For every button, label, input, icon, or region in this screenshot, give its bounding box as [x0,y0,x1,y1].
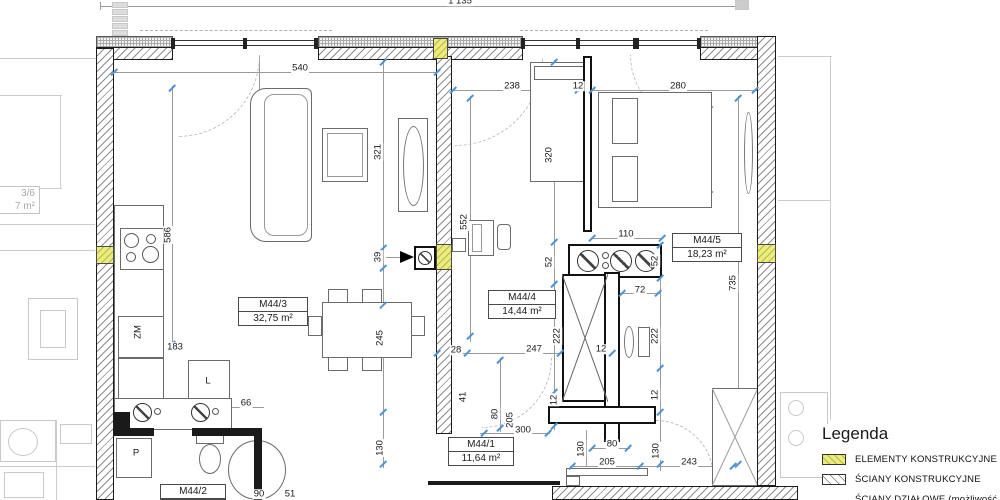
legend-item: ŚCIANY KONSTRUKCYJNE [822,474,1000,485]
room-label-m44-2: M44/2 [160,484,226,500]
dimension-label: ZM [133,324,143,340]
sink-circle [191,403,210,422]
wall-bottom [552,486,798,500]
dimension-label: 1 135 [447,0,473,6]
sink-circle [133,403,152,422]
chair [411,316,425,336]
legend: Legenda ELEMENTY KONSTRUKCYJNE ŚCIANY KO… [822,424,1000,500]
dimension-label: 66 [240,398,253,408]
dimension-label: 280 [669,81,687,91]
pillow [612,156,638,202]
hall-bench [566,476,580,486]
dimension-label: 28 [450,345,463,355]
dimension-label: 130 [651,442,661,460]
toilet [199,444,221,474]
dim-line [383,60,384,468]
legend-title: Legenda [822,424,1000,444]
dimension-label: 245 [375,329,385,347]
balcony-outline [520,30,708,31]
dimension-label: 80 [606,439,619,449]
dimension-label: 300 [514,425,532,435]
door-arc [178,55,260,137]
wall-corridor-horizontal [548,406,656,424]
room-label-m44-1: M44/111,64 m² [448,437,514,466]
legend-item: ŚCIANY DZIAŁOWE (możliwość aranżacji) [822,494,1000,500]
structural-column [436,244,452,270]
dimension-label: 41 [458,391,468,404]
dining-table [322,302,412,358]
dimension-label: 243 [680,457,698,467]
dimension-label: 320 [544,146,554,164]
dimension-label: 247 [525,344,543,354]
arrow-icon [400,251,414,263]
window [523,40,637,46]
dimension-label: 110 [617,229,634,239]
wall-bedrooms [583,56,592,232]
chair [362,357,382,371]
sink-circle [577,250,599,272]
dimension-label: L [204,376,211,386]
room-label-m44-3: M44/332,75 m² [238,297,308,326]
dimension-label: 52 [544,256,554,269]
dim-line [114,72,437,73]
dimension-label: 12 [549,394,559,407]
dimension-label: 552 [459,213,469,231]
dimension-label: 12 [650,389,660,402]
dimension-label: 80 [490,408,500,421]
wall-left [96,48,114,500]
structural-element [433,38,448,59]
dimension-label: 735 [728,274,738,292]
chair [308,316,322,336]
chair [328,289,348,303]
dimension-label: 12 [572,81,585,91]
dimension-label: 183 [166,342,184,352]
dim-line [100,6,740,7]
dimension-label: 130 [576,440,586,458]
tv-stand [638,327,650,357]
pillow [612,98,638,144]
window [637,40,700,46]
dimension-label: 90 [253,489,266,499]
balcony-outline [140,30,332,31]
legend-item: ELEMENTY KONSTRUKCYJNE [822,454,1000,465]
door-arc [656,420,714,478]
chair [362,289,382,303]
dimension-label: 39 [373,251,383,264]
wardrobe-x [712,388,758,486]
entrance-wall [428,481,560,485]
structural-element [757,244,776,263]
dimension-label: 72 [634,285,647,295]
tv [624,326,634,358]
dimension-label: 586 [163,226,173,244]
dimension-label: P [132,448,140,458]
diagonal-hatch-swatch [822,474,846,485]
dimension-label: 205 [598,457,616,467]
dimension-label: 52 [650,255,660,268]
dimension-label: 12 [595,344,608,354]
room-label-m44-4: M44/414,44 m² [488,290,556,319]
shaft-x [562,274,608,402]
floor-plan: 3/6 7 m² [0,0,1000,500]
dimension-label: 51 [284,489,297,499]
structural-element [96,246,114,264]
dimension-label: 222 [552,327,562,345]
dimension-label: 222 [650,327,660,345]
dimension-label: 540 [291,63,309,73]
dimension-label: 130 [375,439,385,457]
pillow [534,66,584,80]
dim-tick [544,429,551,436]
yellow-hatch-swatch [822,454,846,465]
sink-circle [610,250,632,272]
radiator [744,112,753,194]
column-symbol [418,251,432,265]
dimension-label: 238 [503,81,521,91]
dim-tick [624,444,631,451]
room-label-m44-5: M44/518,23 m² [672,233,742,262]
hall-shelf [566,468,648,476]
chair [328,357,348,371]
dim-line [100,2,101,10]
neighbor-room-label: 3/6 7 m² [0,186,40,214]
mirror [403,126,424,206]
desk-chair [497,224,511,250]
dimension-label: 321 [373,143,383,161]
dim-line [172,86,173,348]
dimension-label: 205 [505,411,515,429]
